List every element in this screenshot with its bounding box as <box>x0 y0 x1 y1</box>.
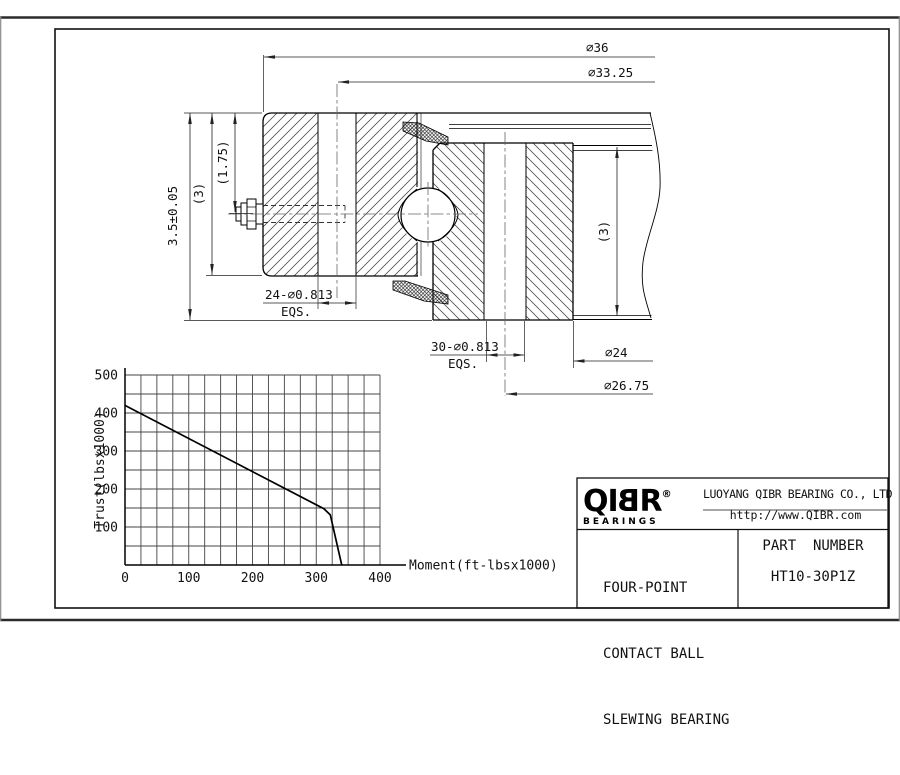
dim-right-ring-height: (3) <box>596 221 611 244</box>
dim-inner-bolt-circle: ⌀26.75 <box>604 378 649 393</box>
y-tick-label: 500 <box>95 369 118 384</box>
product-line-3: SLEWING BEARING <box>603 709 729 731</box>
dim-grease-fitting-height: (1.75) <box>215 140 230 185</box>
dim-left-ring-height: (3) <box>191 183 206 206</box>
product-line-1: FOUR-POINT <box>603 577 729 599</box>
company-name: LUOYANG QIBR BEARING CO., LTD <box>703 487 888 501</box>
load-capacity-chart-svg: 0100200300400100200300400500Moment(ft-lb… <box>60 350 575 595</box>
x-tick-label: 100 <box>177 571 200 586</box>
company-logo: QIBR® BEARINGS <box>583 481 671 527</box>
x-tick-label: 0 <box>121 571 129 586</box>
product-line-2: CONTACT BALL <box>603 643 729 665</box>
dim-outer-diameter: ⌀36 <box>586 40 609 55</box>
dim-outer-holes: 24-⌀0.813 <box>265 287 333 302</box>
x-axis-label: Moment(ft-lbsx1000) <box>409 559 558 574</box>
load-capacity-chart: 0100200300400100200300400500Moment(ft-lb… <box>60 350 575 595</box>
company-website: http://www.QIBR.com <box>703 508 888 522</box>
engineering-drawing-sheet: { "title_block": { "logo_prefix": "QI", … <box>0 0 900 636</box>
x-tick-label: 400 <box>368 571 391 586</box>
dim-inner-diameter: ⌀24 <box>605 345 628 360</box>
part-number-value: HT10-30P1Z <box>738 569 888 585</box>
y-axis-label: Trust(lbsx1000) <box>93 411 108 528</box>
capacity-curve <box>125 405 342 565</box>
x-tick-label: 300 <box>305 571 328 586</box>
registered-mark-icon: ® <box>662 489 671 500</box>
product-description: FOUR-POINT CONTACT BALL SLEWING BEARING <box>603 533 729 775</box>
break-line <box>642 113 660 318</box>
x-tick-label: 200 <box>241 571 264 586</box>
seal-land-lines <box>418 113 651 129</box>
flange-band <box>573 146 653 320</box>
logo-wordmark: QIBR® <box>583 481 671 516</box>
dim-overall-height: 3.5±0.05 <box>165 186 180 246</box>
dim-outer-bolt-circle: ⌀33.25 <box>588 65 633 80</box>
part-number-label: PART NUMBER <box>738 538 888 554</box>
dim-outer-holes-note: EQS. <box>281 304 311 319</box>
